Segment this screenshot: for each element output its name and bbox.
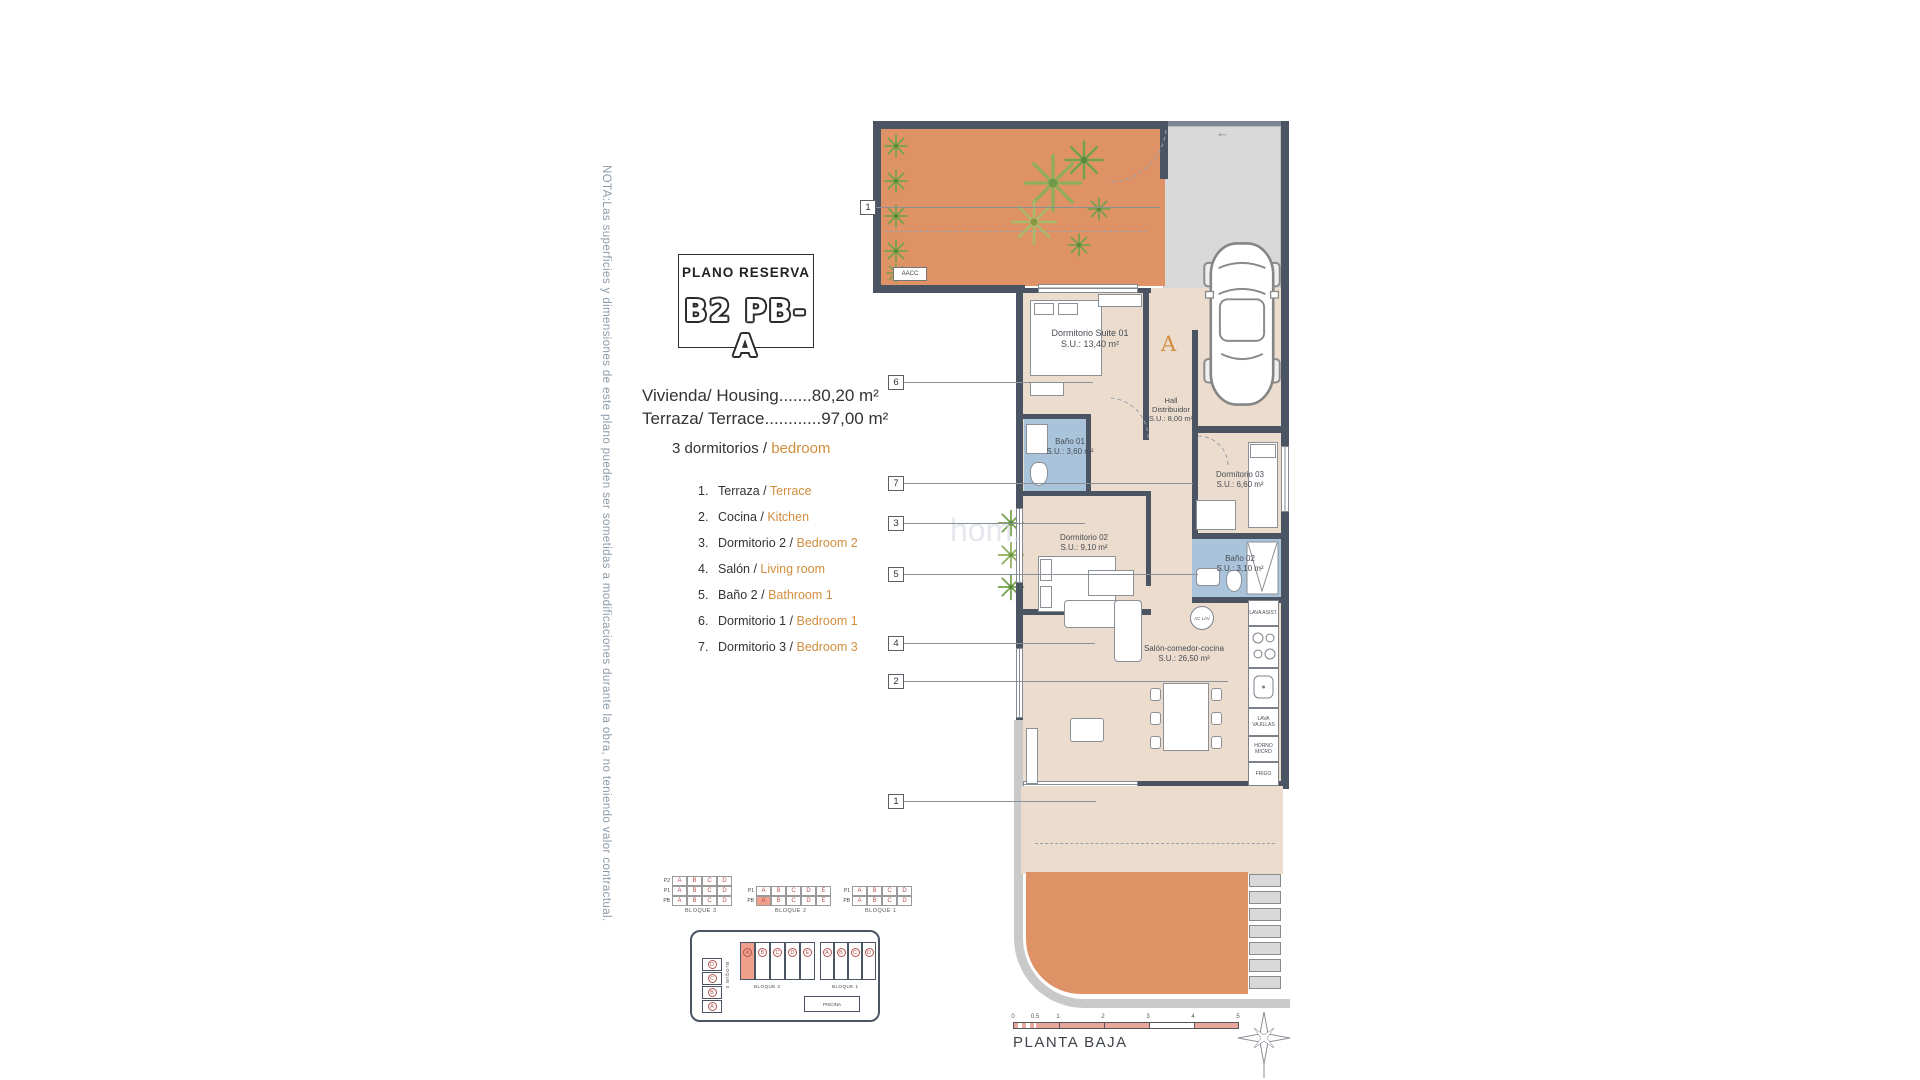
housing-area-line: Vivienda/ Housing.......80,20 m²	[642, 384, 888, 407]
site-bloque1-units: A B C D	[820, 942, 876, 980]
unit-code: B2 PB-A	[679, 294, 813, 364]
pillow	[1040, 586, 1052, 608]
matrix-bloque1-caption: BLOQUE 1	[865, 908, 897, 914]
tag-1: 1	[860, 200, 876, 215]
dresser	[1030, 382, 1064, 396]
area-summary: Vivienda/ Housing.......80,20 m² Terraza…	[642, 384, 888, 430]
room-label-bed2: Dormitorio 02 S.U.: 9,10 m²	[1046, 533, 1122, 553]
legend-item: 6.Dormitorio 1 / Bedroom 1	[698, 614, 858, 628]
floor-title: PLANTA BAJA	[1013, 1034, 1128, 1051]
leader-line	[904, 382, 1093, 383]
site-bloque1-label: BLOQUE 1	[832, 984, 859, 989]
leader-line	[904, 483, 1193, 484]
highlighted-unit-cell: A	[756, 896, 771, 906]
room-label-living: Salón-comedor-cocina S.U.: 26,50 m²	[1128, 644, 1240, 664]
legend-item: 3.Dormitorio 2 / Bedroom 2	[698, 536, 858, 550]
matrix-bloque2: P1ABCDE PBABCDE	[744, 886, 831, 906]
floor-plan-sheet: NOTA:Las superficies y dimensiones de es…	[0, 0, 1920, 1080]
plan-type-label: PLANO RESERVA	[679, 265, 813, 280]
room-label-bath1: Baño 01 S.U.: 3,60 m²	[1038, 437, 1102, 457]
site-key-plan: D C B A BLOQUE 3 A B C D E BLOQUE 2 A B …	[690, 930, 880, 1022]
site-bloque2-label: BLOQUE 2	[754, 984, 781, 989]
chair	[1150, 688, 1161, 701]
cooktop	[1248, 626, 1279, 668]
legend-item: 2.Cocina / Kitchen	[698, 510, 858, 524]
kitchen-sink	[1248, 668, 1279, 708]
room-label-bed3: Dormitorio 03 S.U.: 6,60 m²	[1202, 470, 1278, 490]
leader-line	[904, 523, 1085, 524]
cabinet	[1196, 500, 1236, 530]
terrace-area-line: Terraza/ Terrace............97,00 m²	[642, 407, 888, 430]
matrix-bloque1: P1ABCD PBABCD	[840, 886, 912, 906]
legend-item: 7.Dormitorio 3 / Bedroom 3	[698, 640, 858, 654]
room-legend: 1.Terraza / Terrace 2.Cocina / Kitchen 3…	[698, 484, 858, 666]
room-label-suite: Dormitorio Suite 01 S.U.: 13,40 m²	[1035, 328, 1145, 350]
pool: PISCINA	[804, 996, 860, 1012]
pillow	[1034, 303, 1054, 315]
bedrooms-es: 3 dormitorios /	[672, 440, 767, 457]
disclaimer-note: NOTA:Las superficies y dimensiones de es…	[600, 165, 612, 877]
bedrooms-line: 3 dormitorios / bedroom	[672, 440, 830, 457]
wardrobe	[1098, 294, 1142, 307]
matrix-bloque3-caption: BLOQUE 3	[685, 908, 717, 914]
tag-5: 5	[888, 567, 904, 582]
tag-6: 6	[888, 375, 904, 390]
pillow	[1250, 444, 1276, 458]
site-bloque2-units: A B C D E	[740, 942, 815, 980]
compass-icon	[1232, 1008, 1296, 1080]
legend-item: 4.Salón / Living room	[698, 562, 858, 576]
tag-7: 7	[888, 476, 904, 491]
terrace-dashed-line	[1035, 843, 1275, 844]
leader-line	[904, 643, 1095, 644]
highlighted-unit: A	[740, 942, 755, 980]
kitchen-cabinet-label: LAVA ASIST.	[1248, 600, 1279, 626]
leader-line	[904, 681, 1228, 682]
entrance-marker: A	[1161, 332, 1176, 356]
pillow	[1058, 303, 1078, 315]
leader-line	[876, 207, 1160, 208]
room-label-hall: Hall Distribuidor S.U.: 8,00 m²	[1146, 396, 1196, 423]
leader-line	[904, 801, 1096, 802]
room-label-bath2: Baño 02 S.U.: 3,10 m²	[1202, 554, 1278, 574]
garden-steps	[1249, 874, 1281, 989]
legend-item: 5.Baño 2 / Bathroom 1	[698, 588, 858, 602]
site-bloque3-units: D C B A	[702, 958, 722, 1013]
car-icon	[1203, 238, 1281, 410]
garden-terrace	[1026, 872, 1248, 994]
title-block: PLANO RESERVA B2 PB-A	[678, 254, 814, 348]
chair	[1211, 688, 1222, 701]
leader-line	[904, 574, 1198, 575]
site-bloque3-label: BLOQUE 3	[725, 962, 730, 989]
bedrooms-en: bedroom	[771, 440, 830, 457]
tag-4: 4	[888, 636, 904, 651]
watermark: hom.	[950, 512, 1021, 549]
tag-2: 2	[888, 674, 904, 689]
lower-terrace	[1021, 786, 1283, 874]
tag-3: 3	[888, 516, 904, 531]
matrix-bloque2-caption: BLOQUE 2	[775, 908, 807, 914]
scale-bar: 0 0.5 1 2 3 4 5	[1013, 1014, 1253, 1034]
tag-1b: 1	[888, 794, 904, 809]
pillow	[1040, 559, 1052, 581]
washer-icon: AC LAV	[1190, 606, 1214, 630]
legend-item: 1.Terraza / Terrace	[698, 484, 858, 498]
matrix-bloque3: P2ABCD P1ABCD PBABCD	[660, 876, 732, 906]
